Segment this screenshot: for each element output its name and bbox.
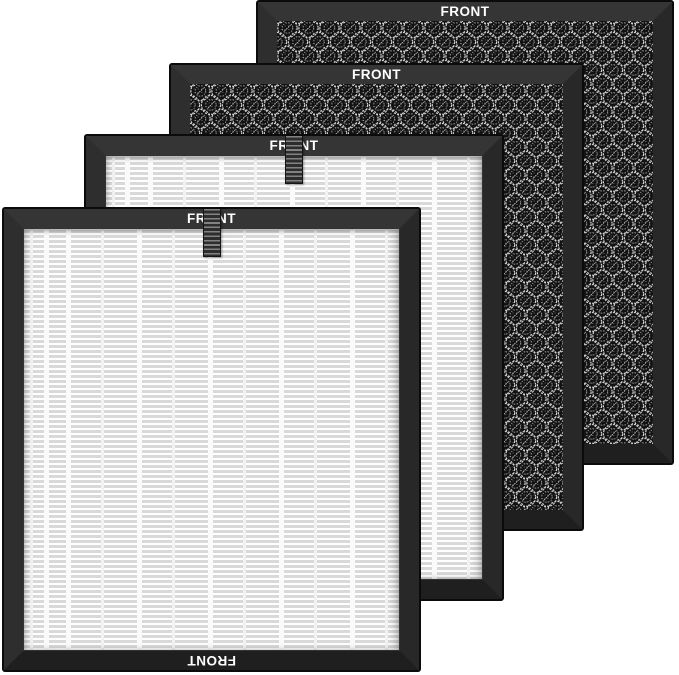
- hepa-pleated-media: [23, 228, 400, 651]
- product-photo: FRONT: [0, 0, 679, 675]
- pull-tab: [203, 209, 221, 257]
- front-label: FRONT: [277, 2, 653, 21]
- hepa-filter-front: FRONT FRONT: [2, 207, 421, 672]
- front-label: FRONT: [190, 65, 563, 84]
- pull-tab: [285, 136, 303, 184]
- filter-frame: FRONT FRONT: [4, 209, 419, 670]
- front-label-bottom: FRONT: [23, 651, 400, 670]
